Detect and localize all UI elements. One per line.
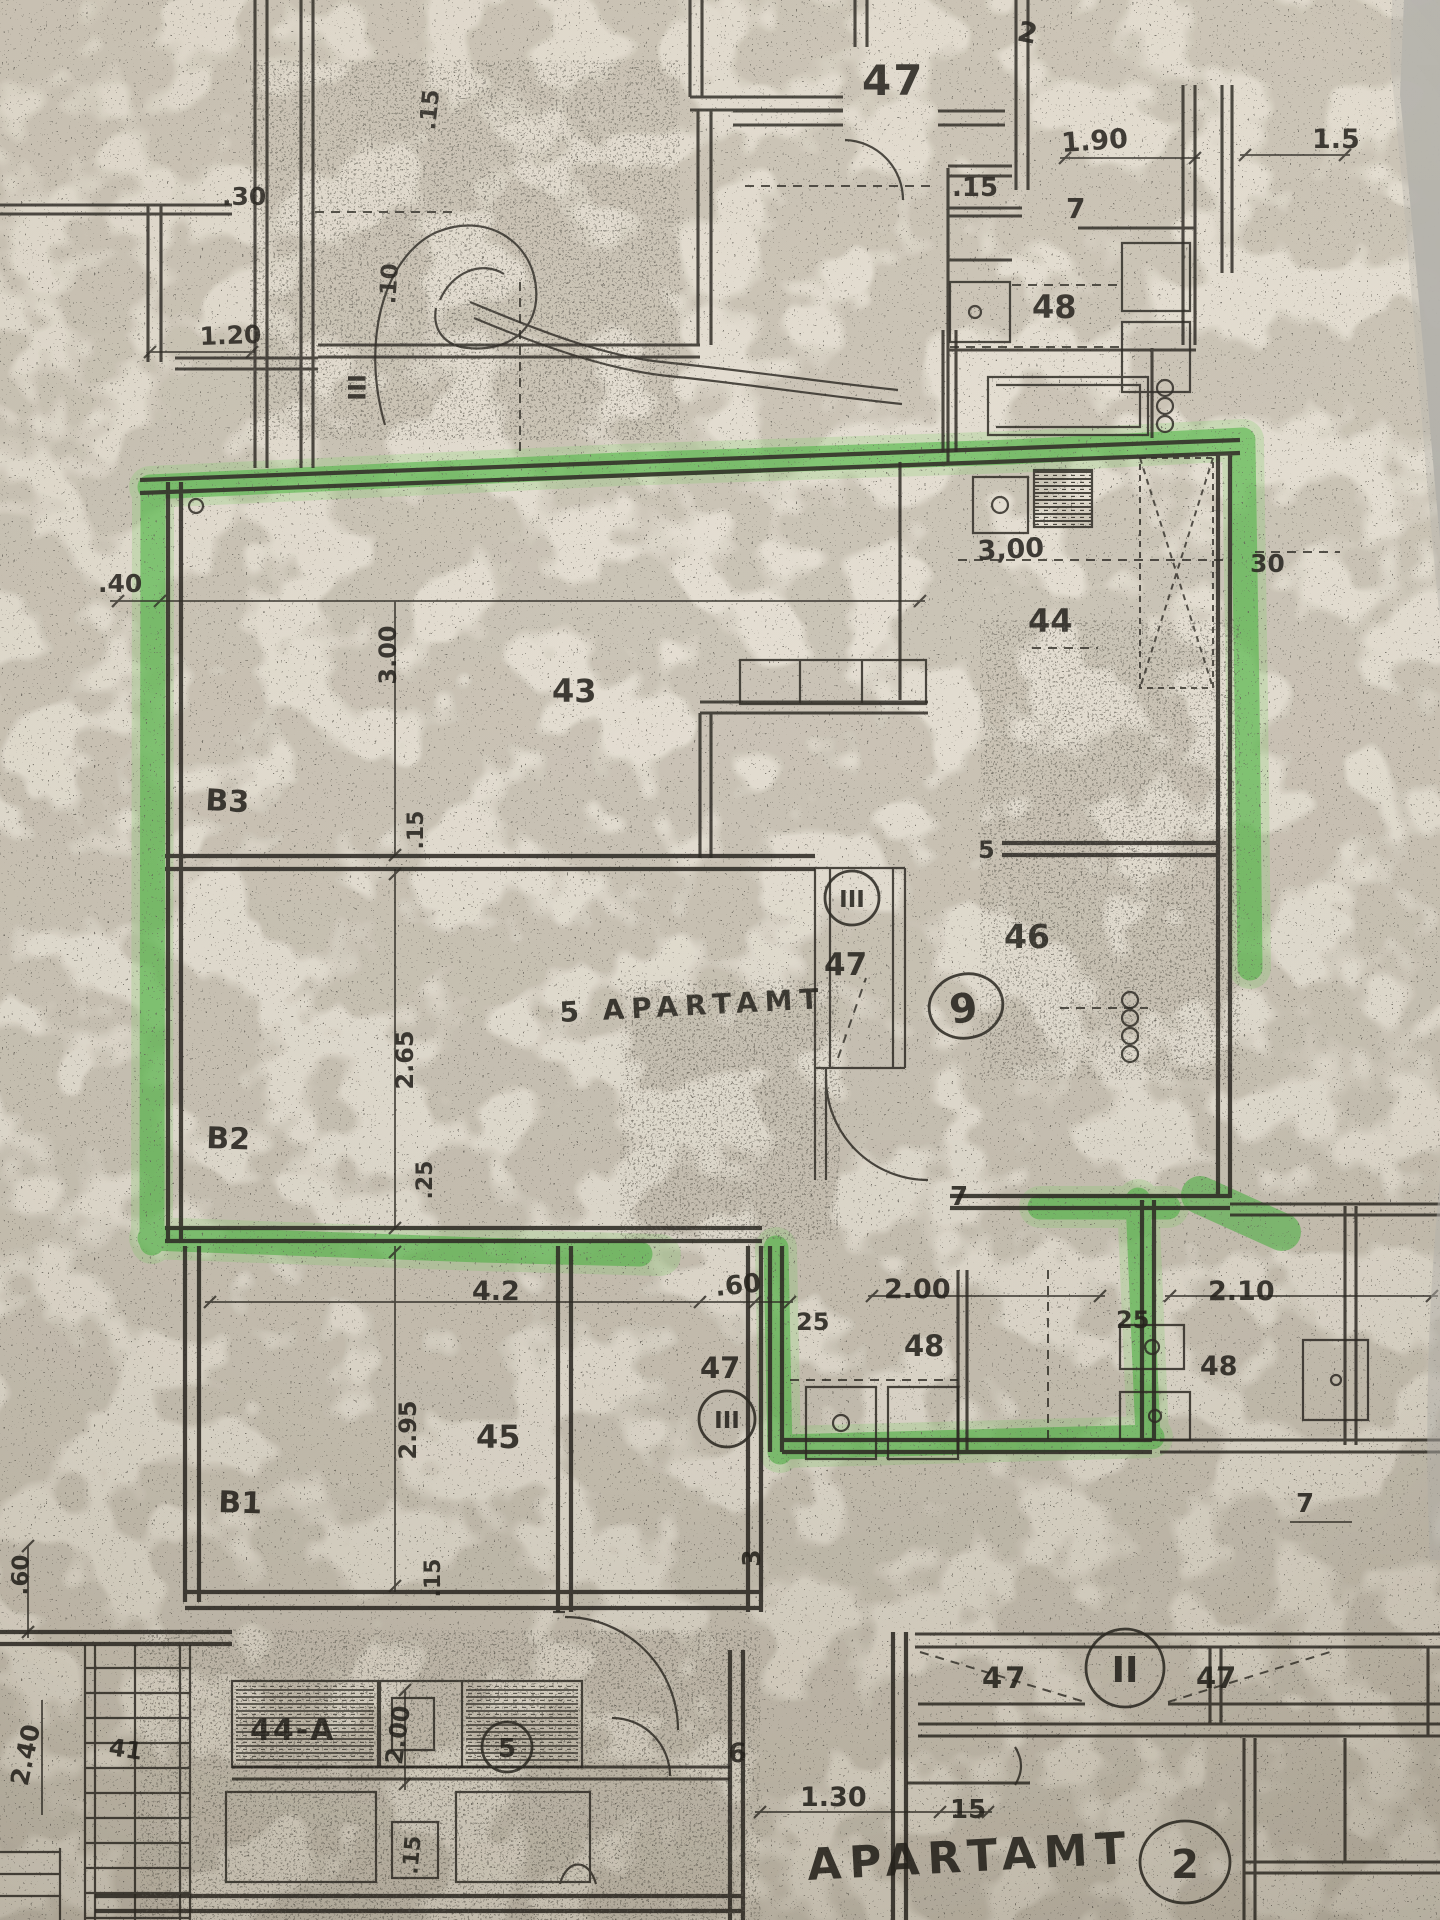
kitchen-stove — [1034, 470, 1092, 527]
dim-60v: .60 — [7, 1554, 34, 1596]
shaft-47: 47 — [824, 947, 867, 983]
dim-30-right: 30 — [1250, 549, 1285, 578]
dim-3v: 3 — [737, 1549, 766, 1566]
dim-190: 1.90 — [1060, 123, 1129, 159]
room-48-top: 48 — [1032, 288, 1077, 326]
dim-130: 1.30 — [800, 1782, 867, 1813]
zone-b1: B1 — [218, 1485, 263, 1522]
circle-2-label: 2 — [1171, 1842, 1199, 1888]
dim-7-mid: 7 — [950, 1182, 968, 1212]
hall-ii: II — [1112, 1650, 1139, 1691]
dim-25-b: 25 — [1116, 1306, 1149, 1334]
dim-60: .60 — [714, 1268, 763, 1303]
room-48-right: 48 — [1200, 1351, 1238, 1382]
dim-15-bottom: 15 — [950, 1795, 986, 1825]
floor-plan-drawing: 47 2 1.90 1.5 .15 7 48 .30 .15 .10 1.20 … — [0, 0, 1440, 1920]
zone-b2: B2 — [206, 1121, 251, 1158]
dim-295: 2.95 — [394, 1400, 422, 1459]
dim-7-top: 7 — [1066, 192, 1085, 225]
corr-iii: III — [714, 1408, 740, 1434]
room-47-top: 47 — [862, 56, 924, 105]
dim-15v-mid: .15 — [404, 811, 429, 850]
dim-25v: .25 — [413, 1161, 438, 1200]
corr-47: 47 — [700, 1351, 740, 1385]
dim-15v-low: .15 — [421, 1559, 446, 1598]
dim-300v: 3.00 — [374, 625, 402, 684]
dim-7-right: 7 — [1296, 1489, 1314, 1519]
hall-47-right: 47 — [1196, 1661, 1236, 1695]
dim-dot15-top: .15 — [952, 173, 998, 203]
dim-25-a: 25 — [796, 1308, 829, 1336]
dim-210: 2.10 — [1208, 1276, 1275, 1307]
dim-40: .40 — [98, 569, 142, 598]
floor-plan-photo: 47 2 1.90 1.5 .15 7 48 .30 .15 .10 1.20 … — [0, 0, 1440, 1920]
room-48-mid: 48 — [904, 1329, 944, 1363]
shaft-iii: III — [839, 887, 865, 913]
dim-200: 2.00 — [884, 1274, 951, 1305]
room-43: 43 — [552, 672, 597, 710]
note-41: 41 — [107, 1733, 144, 1765]
room-45: 45 — [476, 1418, 521, 1456]
dim-300-kitchen: 3,00 — [977, 533, 1045, 567]
dim-265: 2.65 — [391, 1030, 419, 1089]
dim-15-right: 1.5 — [1312, 124, 1360, 155]
hall-47-left: 47 — [982, 1661, 1028, 1695]
zone-b3: B3 — [205, 783, 251, 820]
dim-42: 4.2 — [472, 1276, 520, 1307]
